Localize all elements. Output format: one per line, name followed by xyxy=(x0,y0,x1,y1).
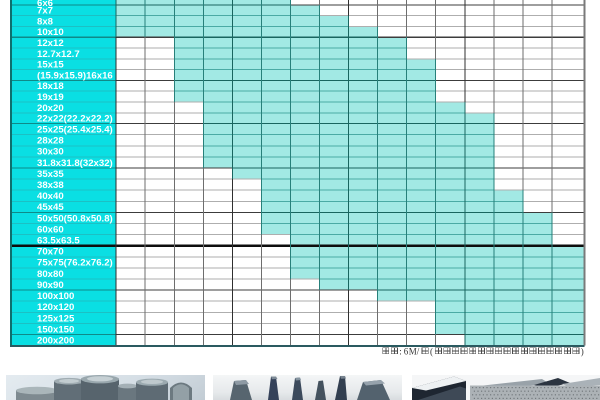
svg-text:19x19: 19x19 xyxy=(37,92,64,103)
svg-text:20x20: 20x20 xyxy=(37,103,64,114)
svg-text:15x15: 15x15 xyxy=(37,60,64,71)
svg-text:28x28: 28x28 xyxy=(37,136,64,147)
svg-text:70x70: 70x70 xyxy=(37,247,64,258)
svg-text:8x8: 8x8 xyxy=(37,16,54,27)
svg-text:): ) xyxy=(581,347,584,357)
svg-text:18x18: 18x18 xyxy=(37,81,64,92)
svg-text:100x100: 100x100 xyxy=(37,291,74,302)
svg-text:90x90: 90x90 xyxy=(37,280,64,291)
svg-text:12x12: 12x12 xyxy=(37,38,64,49)
svg-text:120x120: 120x120 xyxy=(37,302,74,313)
svg-text:75x75(76.2x76.2): 75x75(76.2x76.2) xyxy=(37,258,113,269)
svg-text:(: ( xyxy=(430,347,433,357)
svg-text:150x150: 150x150 xyxy=(37,324,74,335)
svg-text::: : xyxy=(399,347,402,357)
svg-text:45x45: 45x45 xyxy=(37,202,64,213)
svg-text:22x22(22.2x22.2): 22x22(22.2x22.2) xyxy=(37,114,113,125)
svg-text:63.5x63.5: 63.5x63.5 xyxy=(37,236,80,247)
svg-text:200x200: 200x200 xyxy=(37,336,74,347)
svg-text:7x7: 7x7 xyxy=(37,6,53,17)
svg-text:25x25(25.4x25.4): 25x25(25.4x25.4) xyxy=(37,125,113,136)
svg-text:31.8x31.8(32x32): 31.8x31.8(32x32) xyxy=(37,158,113,169)
svg-text:60x60: 60x60 xyxy=(37,224,64,235)
svg-text:30x30: 30x30 xyxy=(37,147,64,158)
svg-text:38x38: 38x38 xyxy=(37,180,64,191)
svg-text:M: M xyxy=(409,347,417,357)
svg-text:10x10: 10x10 xyxy=(37,27,64,38)
svg-text:125x125: 125x125 xyxy=(37,313,75,324)
svg-text:12.7x12.7: 12.7x12.7 xyxy=(37,49,80,60)
svg-text:80x80: 80x80 xyxy=(37,269,64,280)
svg-text:(15.9x15.9)16x16: (15.9x15.9)16x16 xyxy=(37,70,113,81)
svg-text:40x40: 40x40 xyxy=(37,191,64,202)
svg-text:50x50(50.8x50.8): 50x50(50.8x50.8) xyxy=(37,213,113,224)
svg-text:35x35: 35x35 xyxy=(37,169,64,180)
